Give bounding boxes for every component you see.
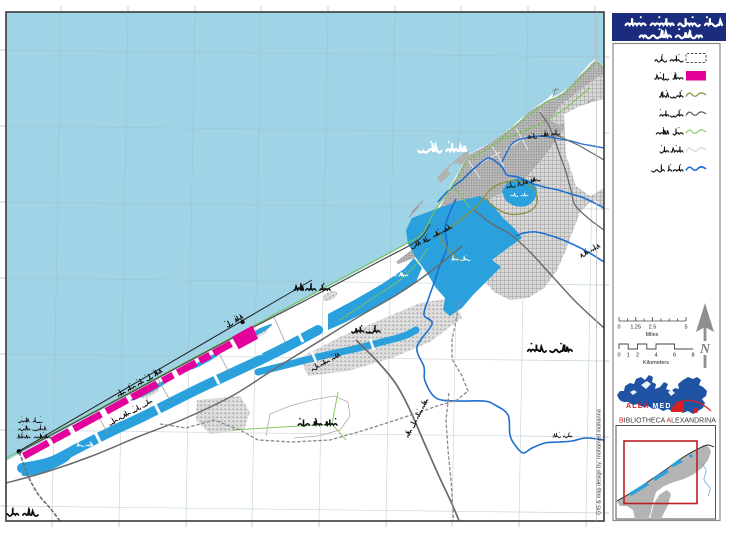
svg-text:6: 6 (673, 353, 676, 359)
svg-text:2: 2 (636, 353, 639, 359)
svg-text:0: 0 (617, 325, 620, 331)
svg-text:ALEX: ALEX (626, 403, 649, 410)
svg-text:Miles: Miles (646, 332, 659, 338)
svg-text:GIS & map design by: mohamed m: GIS & map design by: mohamed mohanna (597, 408, 603, 515)
svg-text:N: N (699, 342, 711, 357)
svg-text:0: 0 (617, 353, 620, 359)
svg-text:Kilometers: Kilometers (643, 360, 669, 366)
svg-text:BIBLIOTHECA ALEXANDRINA: BIBLIOTHECA ALEXANDRINA (619, 418, 716, 425)
svg-text:MED: MED (653, 403, 672, 410)
svg-text:5: 5 (684, 325, 687, 331)
svg-text:1: 1 (627, 353, 630, 359)
svg-text:2.5: 2.5 (649, 325, 657, 331)
svg-text:4: 4 (654, 353, 657, 359)
svg-text:1.25: 1.25 (630, 325, 641, 331)
svg-text:8: 8 (691, 353, 694, 359)
